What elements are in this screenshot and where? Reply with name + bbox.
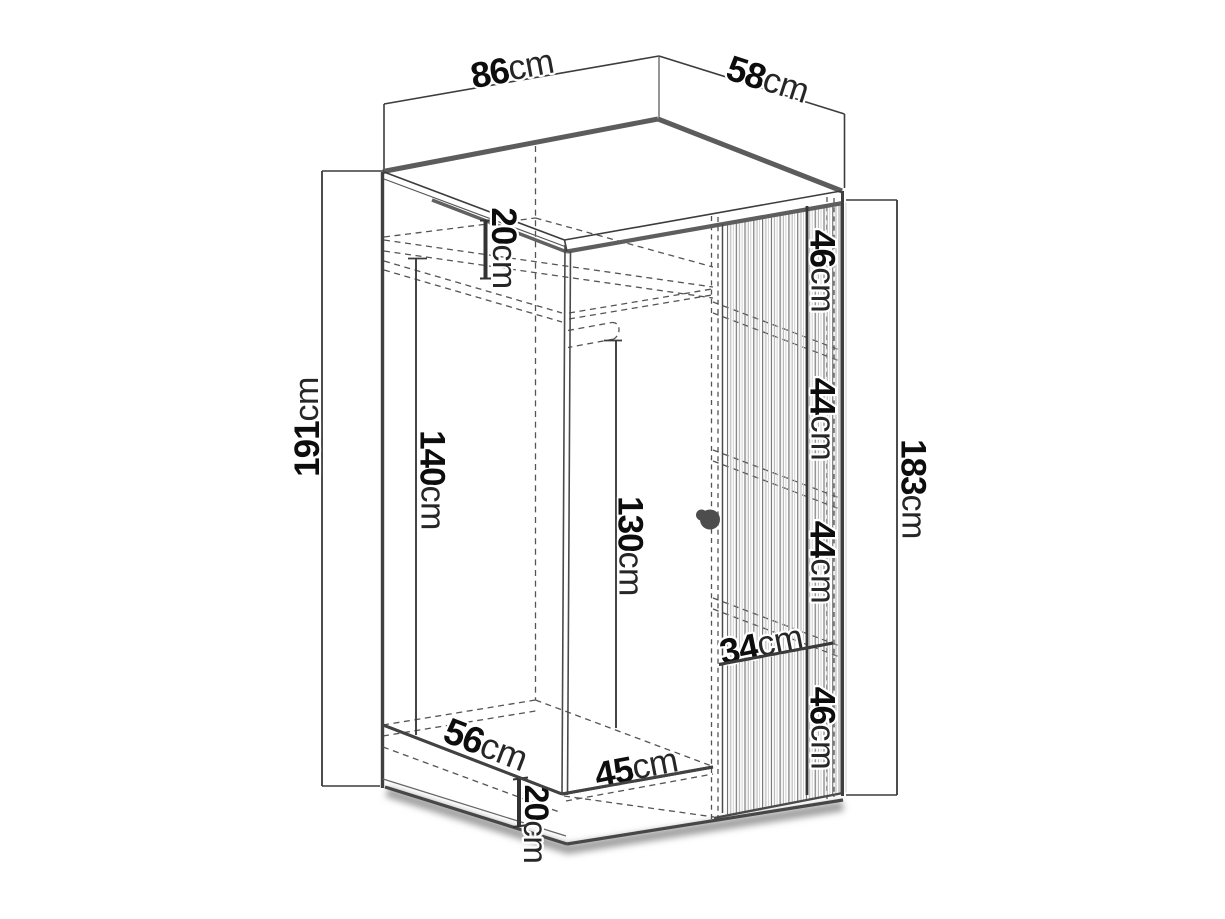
svg-text:46cm: 46cm xyxy=(803,687,843,770)
svg-text:183cm: 183cm xyxy=(894,439,933,539)
svg-text:46cm: 46cm xyxy=(803,230,843,313)
svg-text:44cm: 44cm xyxy=(803,378,843,461)
svg-text:140cm: 140cm xyxy=(413,430,452,530)
svg-text:44cm: 44cm xyxy=(803,521,843,604)
svg-text:20cm: 20cm xyxy=(485,207,524,288)
svg-text:191cm: 191cm xyxy=(288,377,327,477)
svg-text:20cm: 20cm xyxy=(517,785,555,864)
